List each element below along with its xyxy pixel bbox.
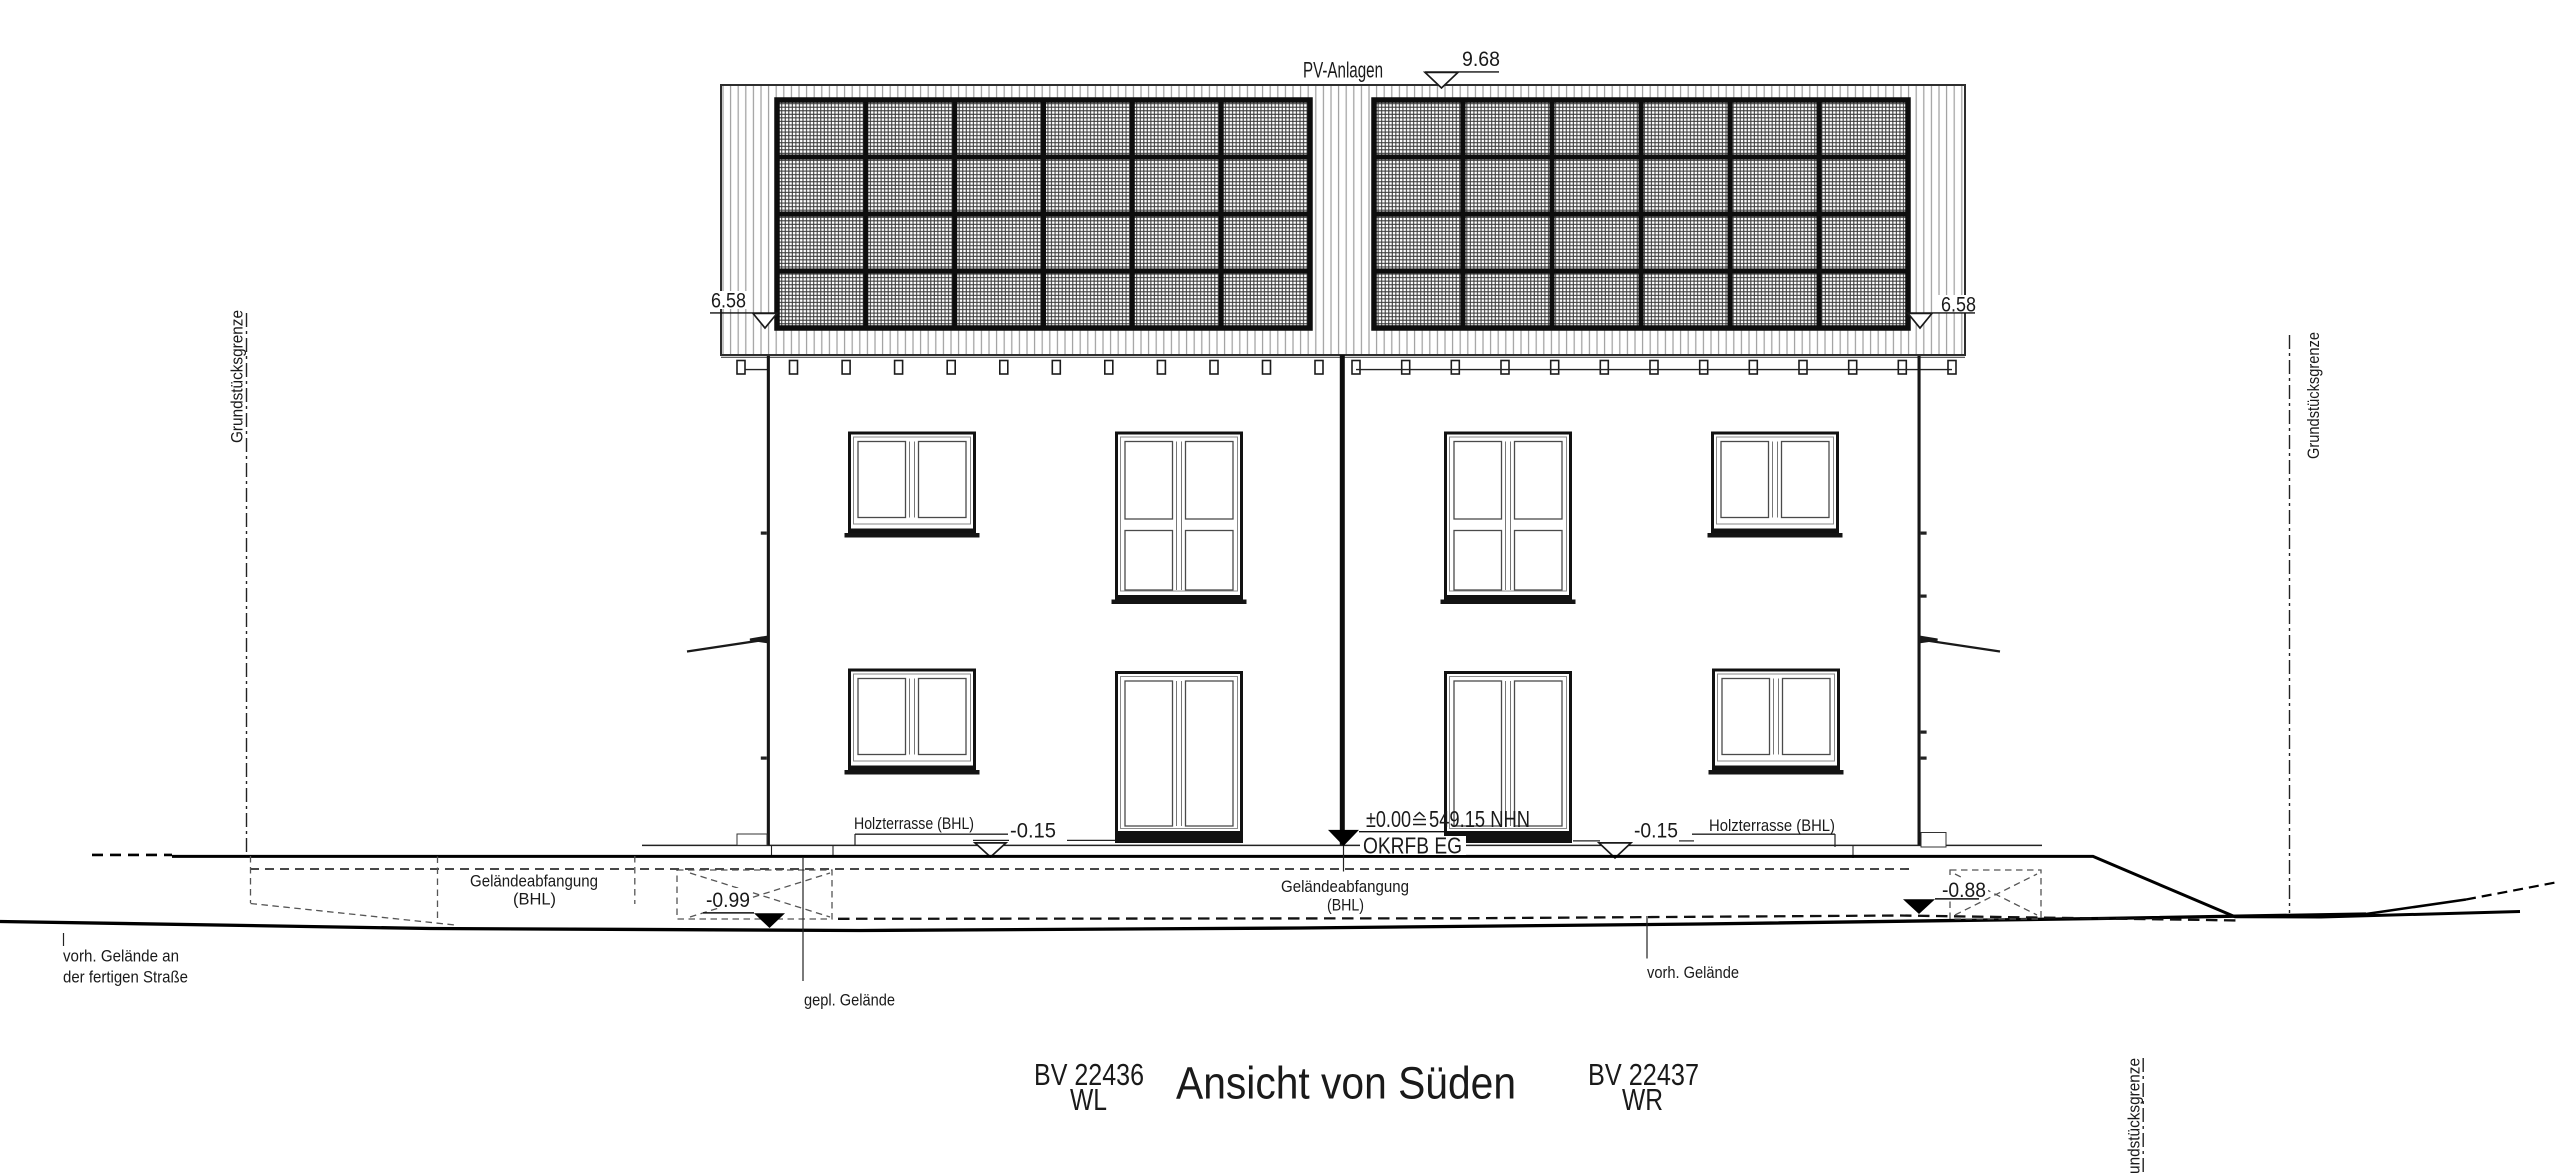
svg-text:PV-Anlagen: PV-Anlagen xyxy=(1303,58,1383,83)
svg-text:±0.00: ±0.00 xyxy=(1366,806,1411,832)
svg-text:Grundstücksgrenze: Grundstücksgrenze xyxy=(2305,332,2323,459)
svg-text:WR: WR xyxy=(1622,1082,1663,1117)
svg-text:der fertigen Straße: der fertigen Straße xyxy=(63,969,188,987)
svg-text:(BHL): (BHL) xyxy=(1327,897,1364,915)
svg-text:vorh. Gelände an: vorh. Gelände an xyxy=(63,948,179,966)
svg-text:Geländeabfangung: Geländeabfangung xyxy=(470,873,598,891)
svg-text:OKRFB EG: OKRFB EG xyxy=(1363,833,1462,859)
svg-text:Holzterrasse (BHL): Holzterrasse (BHL) xyxy=(1709,817,1835,835)
svg-text:-0.99: -0.99 xyxy=(706,889,750,912)
svg-text:Geländeabfangung: Geländeabfangung xyxy=(1281,878,1409,896)
svg-text:-0.15: -0.15 xyxy=(1634,820,1678,843)
svg-text:WL: WL xyxy=(1070,1082,1107,1117)
svg-text:549.15 NHN: 549.15 NHN xyxy=(1429,806,1530,832)
svg-text:Ansicht von Süden: Ansicht von Süden xyxy=(1176,1058,1516,1109)
svg-text:9.68: 9.68 xyxy=(1462,48,1500,71)
svg-text:-0.15: -0.15 xyxy=(1010,820,1056,843)
svg-text:Grundstücksgrenze: Grundstücksgrenze xyxy=(2126,1058,2144,1174)
svg-text:gepl. Gelände: gepl. Gelände xyxy=(804,992,895,1010)
svg-text:Grundstücksgrenze: Grundstücksgrenze xyxy=(229,310,247,443)
svg-text:Holzterrasse (BHL): Holzterrasse (BHL) xyxy=(854,815,974,833)
svg-text:(BHL): (BHL) xyxy=(513,891,556,909)
svg-text:6.58: 6.58 xyxy=(711,290,746,313)
svg-text:vorh. Gelände: vorh. Gelände xyxy=(1647,964,1739,982)
